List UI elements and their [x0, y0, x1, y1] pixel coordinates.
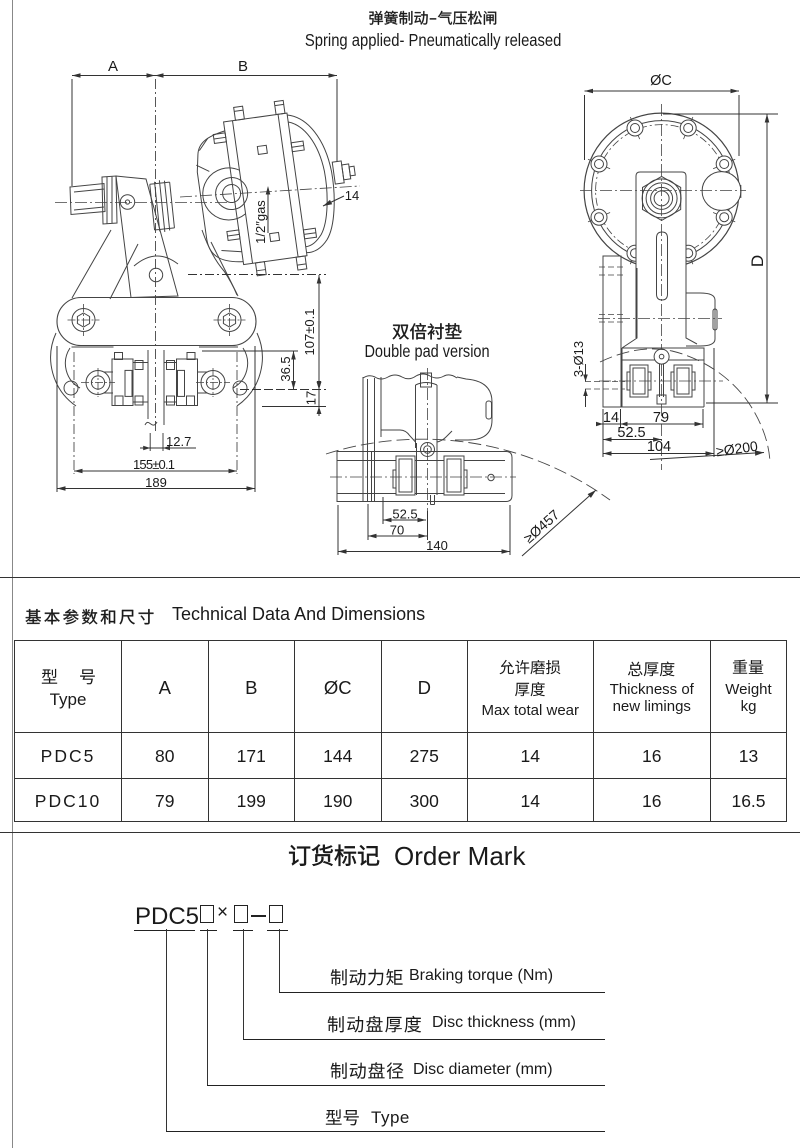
svg-text:12.7: 12.7 — [166, 434, 191, 449]
svg-text:189: 189 — [145, 475, 167, 490]
svg-text:155±0.1: 155±0.1 — [133, 457, 175, 472]
svg-text:B: B — [238, 58, 248, 75]
svg-text:36.5: 36.5 — [278, 356, 293, 381]
svg-text:Double pad version: Double pad version — [364, 342, 489, 362]
svg-text:14: 14 — [603, 410, 619, 426]
svg-text:79: 79 — [653, 410, 669, 426]
svg-text:3-Ø13: 3-Ø13 — [571, 341, 586, 377]
svg-text:140: 140 — [426, 538, 448, 553]
svg-text:14: 14 — [345, 188, 359, 203]
svg-text:70: 70 — [390, 523, 404, 538]
svg-text:104: 104 — [647, 439, 671, 455]
svg-text:1/2″gas: 1/2″gas — [253, 200, 268, 244]
svg-text:107±0.1: 107±0.1 — [302, 309, 317, 356]
svg-text:52.5: 52.5 — [617, 425, 645, 441]
svg-text:ØC: ØC — [650, 73, 672, 89]
svg-text:52.5: 52.5 — [392, 507, 417, 522]
svg-text:17: 17 — [304, 391, 319, 405]
svg-text:≥Ø200: ≥Ø200 — [715, 438, 759, 460]
svg-text:A: A — [108, 58, 118, 75]
svg-text:D: D — [748, 255, 767, 267]
